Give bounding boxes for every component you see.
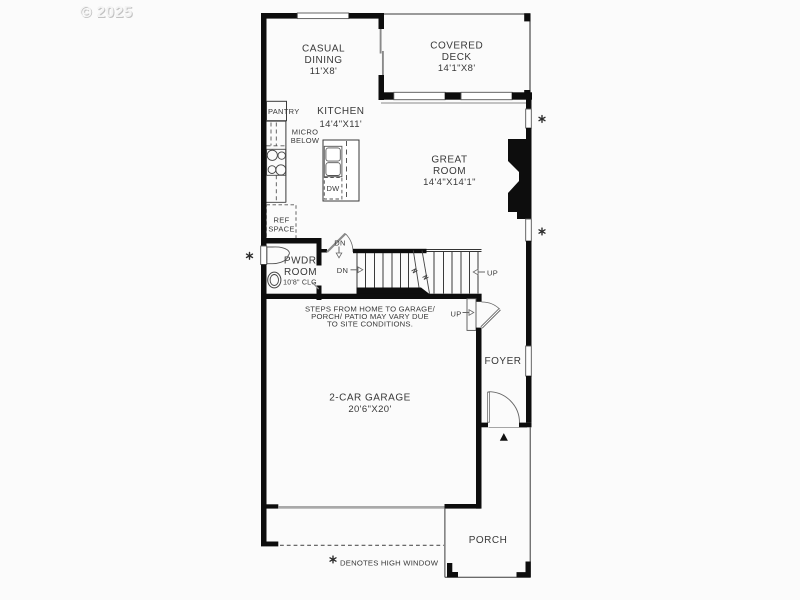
svg-text:ROOM: ROOM	[284, 267, 317, 278]
svg-text:2-CAR GARAGE: 2-CAR GARAGE	[329, 393, 411, 404]
svg-text:DN: DN	[337, 266, 348, 275]
svg-text:DECK: DECK	[442, 52, 472, 63]
svg-text:SPACE: SPACE	[268, 225, 294, 234]
svg-text:TO SITE CONDITIONS.: TO SITE CONDITIONS.	[327, 319, 413, 328]
svg-text:UP: UP	[487, 269, 498, 278]
svg-text:REF: REF	[274, 216, 290, 225]
svg-text:MICRO: MICRO	[292, 128, 319, 137]
svg-text:14'1"X8': 14'1"X8'	[438, 63, 476, 74]
svg-text:10'8" CLG: 10'8" CLG	[283, 280, 317, 287]
svg-text:20'6"X20': 20'6"X20'	[348, 404, 391, 415]
svg-text:FOYER: FOYER	[485, 356, 522, 367]
svg-text:BELOW: BELOW	[291, 136, 320, 145]
svg-text:14'4"X14'1": 14'4"X14'1"	[423, 177, 476, 188]
svg-text:11'X8': 11'X8'	[310, 66, 338, 77]
svg-text:CASUAL: CASUAL	[302, 44, 345, 55]
svg-text:UP: UP	[450, 310, 461, 319]
svg-text:DW: DW	[326, 184, 340, 193]
svg-text:DINING: DINING	[305, 55, 343, 66]
svg-text:PWDR: PWDR	[284, 256, 317, 267]
svg-text:PORCH: PORCH	[469, 535, 508, 546]
svg-text:PANTRY: PANTRY	[268, 107, 300, 116]
svg-text:© 2025: © 2025	[80, 4, 133, 21]
svg-text:KITCHEN: KITCHEN	[317, 106, 364, 117]
svg-text:DENOTES HIGH WINDOW: DENOTES HIGH WINDOW	[340, 559, 439, 568]
svg-text:GREAT: GREAT	[431, 155, 467, 166]
svg-text:14'4"X11': 14'4"X11'	[319, 119, 362, 130]
svg-text:COVERED: COVERED	[430, 41, 483, 52]
svg-text:DN: DN	[334, 239, 345, 248]
svg-text:ROOM: ROOM	[433, 166, 466, 177]
